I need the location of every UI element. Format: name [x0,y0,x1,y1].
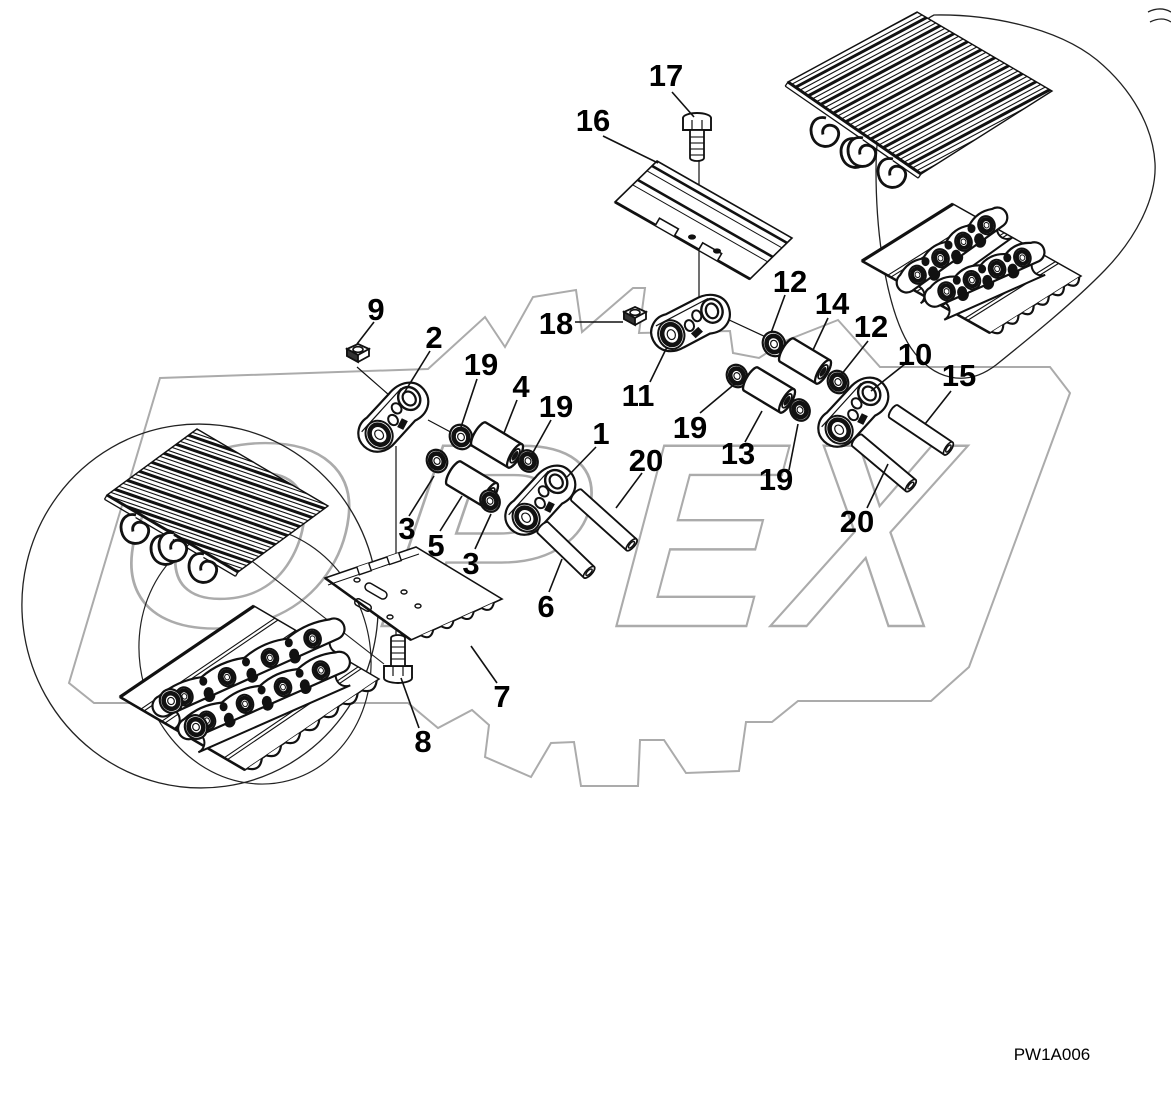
svg-text:4: 4 [512,369,530,404]
svg-text:20: 20 [840,504,874,539]
svg-text:19: 19 [673,410,707,445]
svg-text:1: 1 [592,416,609,451]
svg-text:20: 20 [629,443,663,478]
svg-text:8: 8 [414,724,431,759]
svg-text:12: 12 [773,264,807,299]
svg-text:11: 11 [622,378,655,413]
svg-text:7: 7 [493,679,510,714]
svg-text:14: 14 [815,286,850,321]
svg-text:3: 3 [462,546,479,581]
svg-text:9: 9 [367,292,384,327]
svg-text:2: 2 [425,320,442,355]
svg-text:19: 19 [759,462,793,497]
svg-text:PW1A006: PW1A006 [1014,1045,1091,1064]
svg-text:16: 16 [576,103,610,138]
svg-text:19: 19 [464,347,498,382]
svg-text:5: 5 [427,528,444,563]
svg-text:12: 12 [854,309,888,344]
svg-text:6: 6 [537,589,554,624]
svg-text:19: 19 [539,389,573,424]
svg-text:15: 15 [942,358,976,393]
svg-text:3: 3 [398,511,415,546]
svg-text:18: 18 [539,306,573,341]
svg-text:13: 13 [721,436,755,471]
svg-text:17: 17 [649,58,683,93]
svg-text:10: 10 [898,337,932,372]
